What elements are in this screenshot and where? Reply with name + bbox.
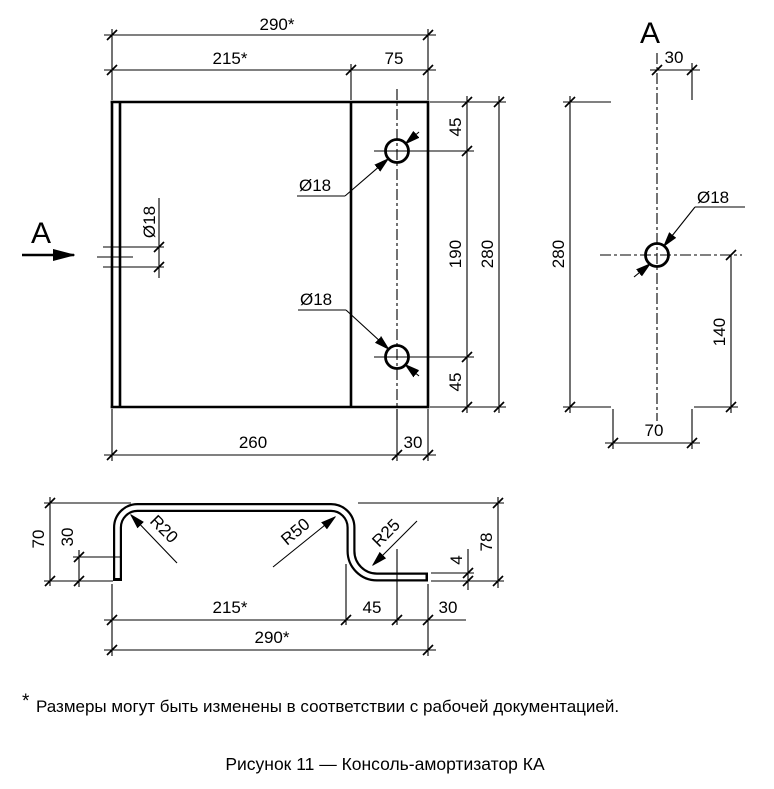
front-view-ticks <box>107 30 504 460</box>
view-a-dim-30: 30 <box>665 48 684 67</box>
front-hole-leaders <box>297 132 419 376</box>
dim-190: 190 <box>446 240 465 268</box>
section-view-a: А <box>549 17 745 449</box>
front-view-centerlines <box>97 89 474 420</box>
hole-label-top: Ø18 <box>299 176 331 195</box>
technical-drawing-page: А 290* 215* 75 45 190 280 45 260 30 Ø18 … <box>0 0 774 789</box>
view-a-hole-label: Ø18 <box>697 188 729 207</box>
front-view: А 290* 215* 75 45 190 280 45 260 30 Ø18 … <box>22 15 506 461</box>
view-a-dimension-lines <box>563 63 738 449</box>
dim-215-left: 215* <box>213 49 248 68</box>
dim-280-front: 280 <box>478 240 497 268</box>
profile-dim-30-left: 30 <box>58 528 77 547</box>
figure-caption: Рисунок 11 — Консоль-амортизатор КА <box>225 754 545 774</box>
view-a-dim-280: 280 <box>549 240 568 268</box>
section-arrow-label: А <box>31 217 51 250</box>
profile-dim-4: 4 <box>447 555 466 564</box>
profile-view: 70 30 R20 R50 R25 4 78 215* 45 30 290* <box>29 497 504 656</box>
profile-dim-70: 70 <box>29 530 48 549</box>
view-a-dim-70: 70 <box>645 421 664 440</box>
dim-290-total: 290* <box>260 15 295 34</box>
dim-45-top: 45 <box>446 118 465 137</box>
dim-75-right: 75 <box>385 49 404 68</box>
footnote-text: Размеры могут быть изменены в соответств… <box>36 697 619 716</box>
profile-dim-215: 215* <box>213 598 248 617</box>
profile-dim-45: 45 <box>363 598 382 617</box>
view-a-title: А <box>640 17 660 50</box>
profile-dim-290: 290* <box>255 628 290 647</box>
profile-dim-30-right: 30 <box>439 598 458 617</box>
dim-30-bottom: 30 <box>404 433 423 452</box>
view-a-ticks <box>565 65 736 448</box>
dim-260: 260 <box>239 433 267 452</box>
view-a-dim-140: 140 <box>710 318 729 346</box>
drawing-canvas: А 290* 215* 75 45 190 280 45 260 30 Ø18 … <box>0 0 774 789</box>
radius-label-r20: R20 <box>146 511 181 546</box>
footnote-star: * <box>22 691 30 712</box>
notes: * Размеры могут быть изменены в соответс… <box>22 691 619 774</box>
radius-label-r50: R50 <box>277 514 313 549</box>
hole-label-bottom: Ø18 <box>300 290 332 309</box>
radius-label-r25: R25 <box>368 515 403 550</box>
profile-dim-78: 78 <box>477 533 496 552</box>
dim-45-bottom: 45 <box>446 373 465 392</box>
hole-label-left: Ø18 <box>140 206 159 238</box>
view-a-hole-leader <box>634 207 745 277</box>
